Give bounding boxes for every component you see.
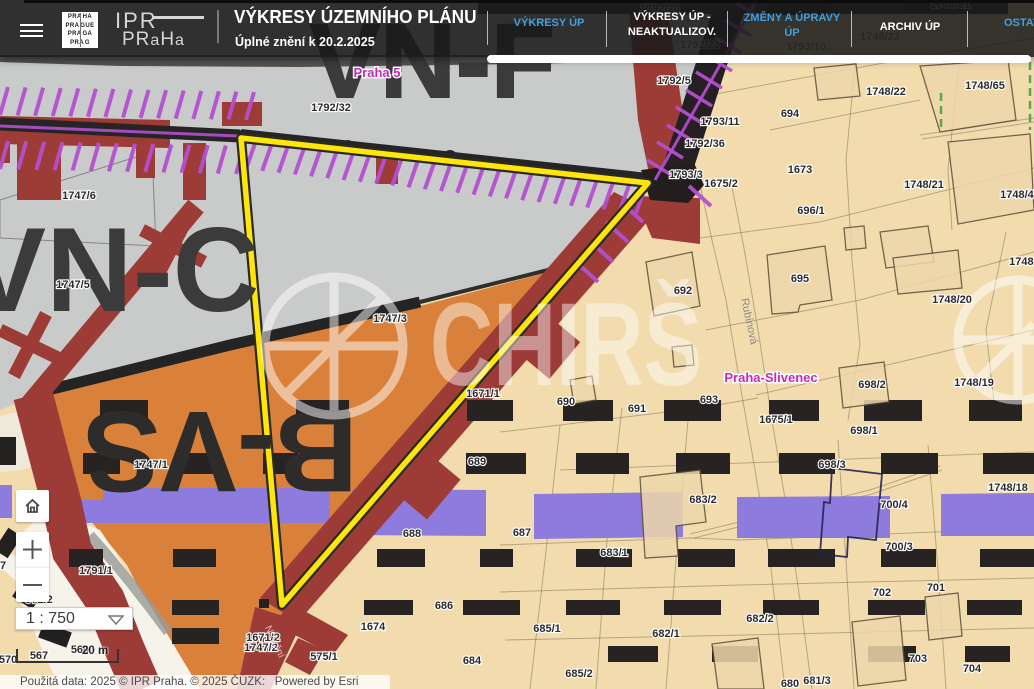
svg-text:694: 694 xyxy=(781,108,800,120)
svg-text:698/1: 698/1 xyxy=(850,425,878,437)
svg-text:570: 570 xyxy=(0,654,17,666)
svg-text:1747/3: 1747/3 xyxy=(373,313,407,325)
svg-text:696/1: 696/1 xyxy=(797,205,825,217)
svg-text:1671/1: 1671/1 xyxy=(466,388,500,400)
svg-text:704: 704 xyxy=(963,663,982,675)
svg-text:1792/32: 1792/32 xyxy=(311,102,351,114)
svg-text:Praha-Slivenec: Praha-Slivenec xyxy=(724,370,817,385)
svg-text:695: 695 xyxy=(791,273,809,285)
svg-text:1792/5: 1792/5 xyxy=(657,75,691,87)
svg-text:687: 687 xyxy=(513,527,531,539)
svg-text:682/2: 682/2 xyxy=(746,613,774,625)
svg-text:684: 684 xyxy=(463,655,482,667)
svg-text:1675/2: 1675/2 xyxy=(704,178,738,190)
svg-text:700/3: 700/3 xyxy=(885,541,913,553)
svg-text:1748/22: 1748/22 xyxy=(866,86,906,98)
svg-text:698/3: 698/3 xyxy=(818,459,846,471)
svg-text:1748/18: 1748/18 xyxy=(988,482,1028,494)
svg-text:692: 692 xyxy=(674,285,692,297)
svg-text:1792/36: 1792/36 xyxy=(685,138,725,150)
svg-text:1747/5: 1747/5 xyxy=(56,279,90,291)
svg-text:693: 693 xyxy=(700,394,718,406)
svg-text:683/2: 683/2 xyxy=(689,494,717,506)
svg-text:1748/45: 1748/45 xyxy=(1000,189,1034,201)
svg-text:700/4: 700/4 xyxy=(880,499,908,511)
svg-text:685/1: 685/1 xyxy=(533,623,561,635)
svg-text:1793/11: 1793/11 xyxy=(700,116,739,128)
svg-text:702: 702 xyxy=(873,587,891,599)
svg-text:688: 688 xyxy=(403,528,421,540)
svg-text:1793/3: 1793/3 xyxy=(669,169,703,181)
svg-text:1673: 1673 xyxy=(788,164,812,176)
svg-text:57: 57 xyxy=(0,560,6,572)
svg-text:698/2: 698/2 xyxy=(858,379,886,391)
svg-text:1747/6: 1747/6 xyxy=(62,190,96,202)
svg-text:B-VS: B-VS xyxy=(83,387,358,515)
svg-text:683/1: 683/1 xyxy=(600,547,628,559)
svg-text:685/2: 685/2 xyxy=(565,668,593,680)
svg-text:680: 680 xyxy=(781,678,799,689)
svg-text:686: 686 xyxy=(435,600,453,612)
svg-text:690: 690 xyxy=(557,396,575,408)
svg-text:682/1: 682/1 xyxy=(652,628,680,640)
svg-text:1748/65: 1748/65 xyxy=(965,80,1005,92)
svg-text:701: 701 xyxy=(927,582,945,594)
svg-text:575/1: 575/1 xyxy=(310,651,338,663)
svg-text:VN-C: VN-C xyxy=(0,203,259,337)
svg-text:689: 689 xyxy=(468,456,486,468)
svg-text:1748/21: 1748/21 xyxy=(904,179,944,191)
svg-text:703: 703 xyxy=(909,653,927,665)
svg-text:1748/20: 1748/20 xyxy=(932,294,972,306)
svg-text:1791/1: 1791/1 xyxy=(79,565,113,577)
svg-text:681/3: 681/3 xyxy=(803,675,831,687)
svg-text:691: 691 xyxy=(628,403,646,415)
svg-text:1747/1: 1747/1 xyxy=(134,459,168,471)
svg-text:1674: 1674 xyxy=(361,621,386,633)
svg-text:1748/19: 1748/19 xyxy=(954,377,994,389)
svg-text:Praha 5: Praha 5 xyxy=(354,65,401,80)
svg-text:1748/4: 1748/4 xyxy=(1009,256,1034,268)
svg-text:1675/1: 1675/1 xyxy=(759,414,793,426)
